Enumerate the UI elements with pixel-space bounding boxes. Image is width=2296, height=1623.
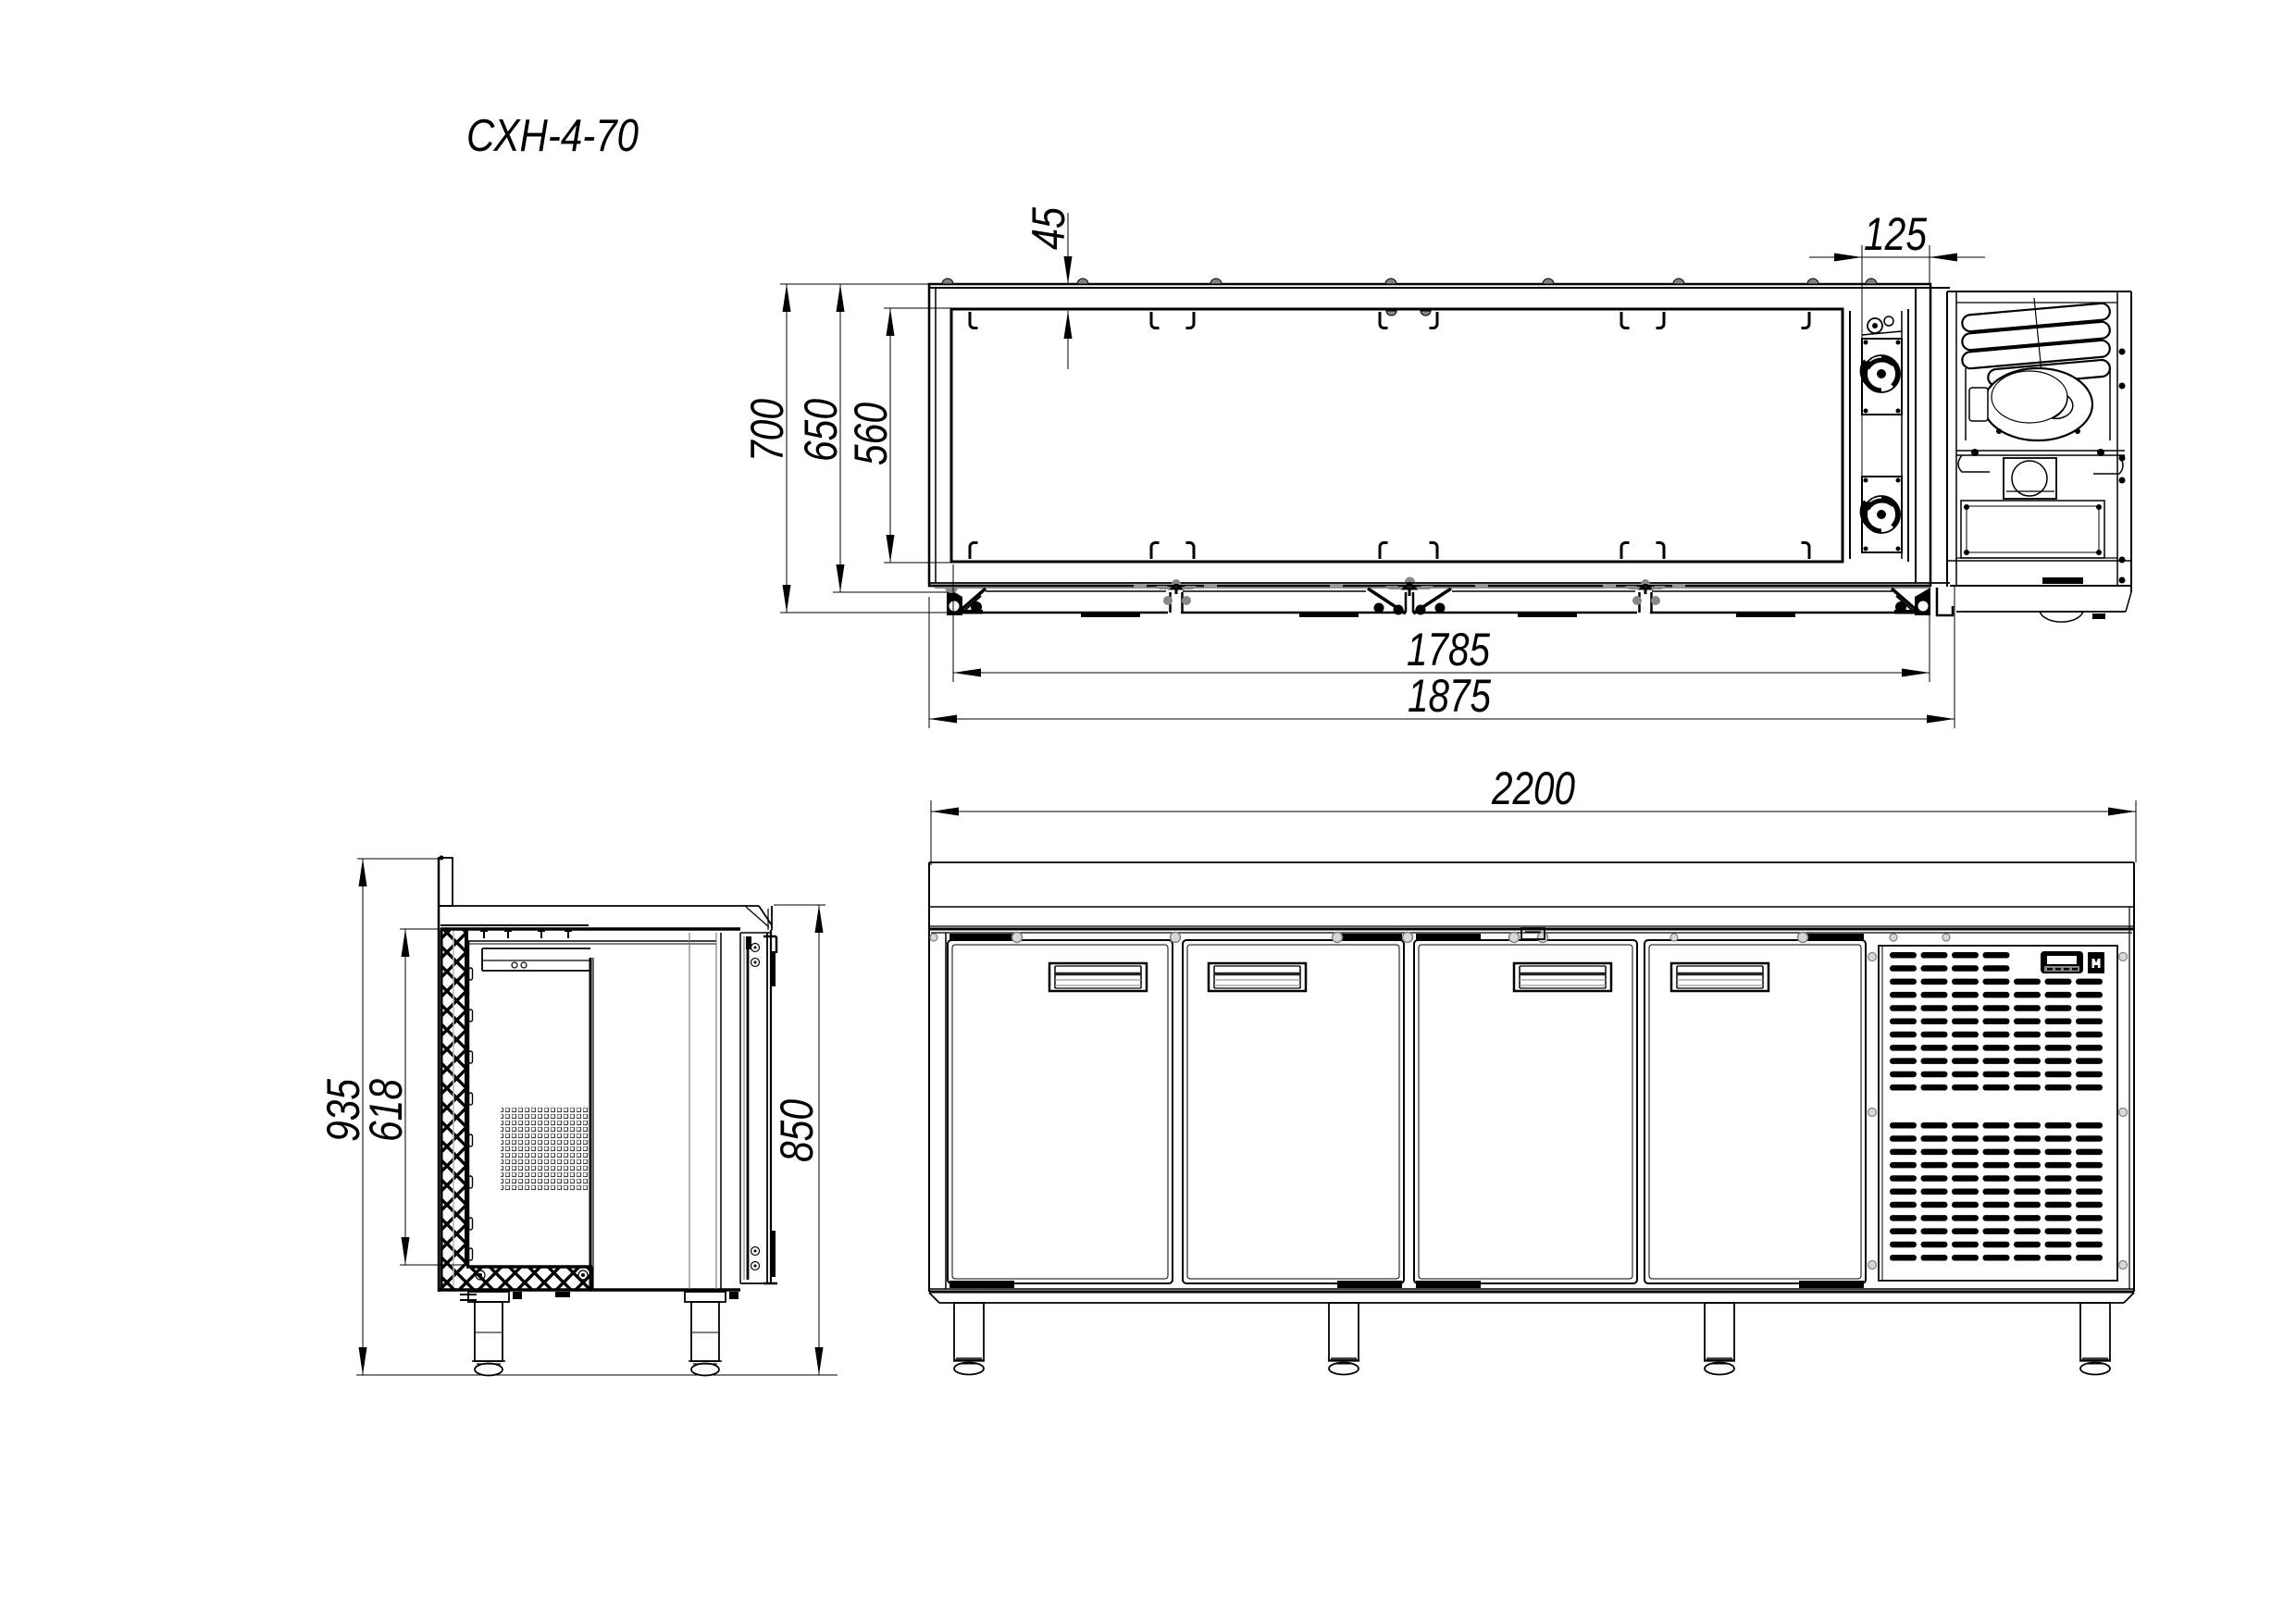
svg-text:125: 125: [1864, 208, 1927, 260]
svg-text:700: 700: [741, 399, 793, 462]
svg-text:618: 618: [360, 1079, 412, 1142]
svg-text:2200: 2200: [1491, 762, 1575, 814]
svg-text:850: 850: [771, 1099, 823, 1162]
svg-text:1785: 1785: [1407, 624, 1490, 675]
svg-text:СХН-4-70: СХН-4-70: [466, 111, 639, 161]
svg-text:560: 560: [845, 403, 897, 465]
svg-text:650: 650: [795, 399, 847, 462]
svg-text:1875: 1875: [1408, 670, 1491, 722]
svg-text:45: 45: [1023, 207, 1074, 250]
